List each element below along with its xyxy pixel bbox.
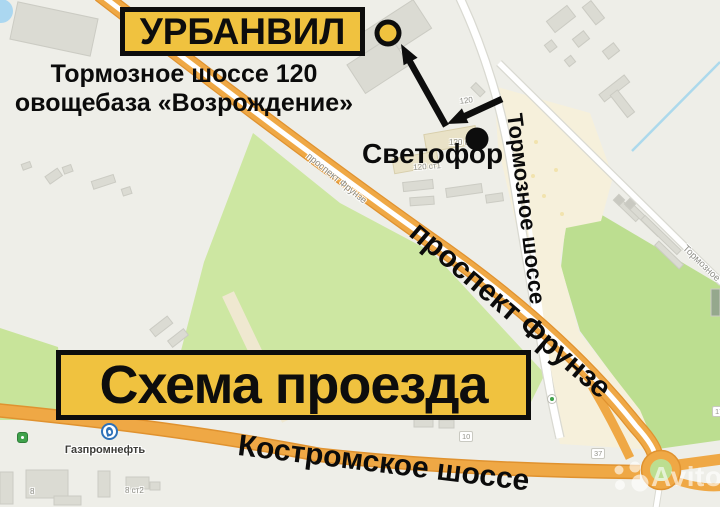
avito-logo-icon [615,462,649,492]
map-scheme-image: проспект Фрунзе Тормозное 120 120 ст 120… [0,0,720,507]
avito-watermark-text: Avito [651,461,720,493]
watermark-logo [0,0,720,507]
